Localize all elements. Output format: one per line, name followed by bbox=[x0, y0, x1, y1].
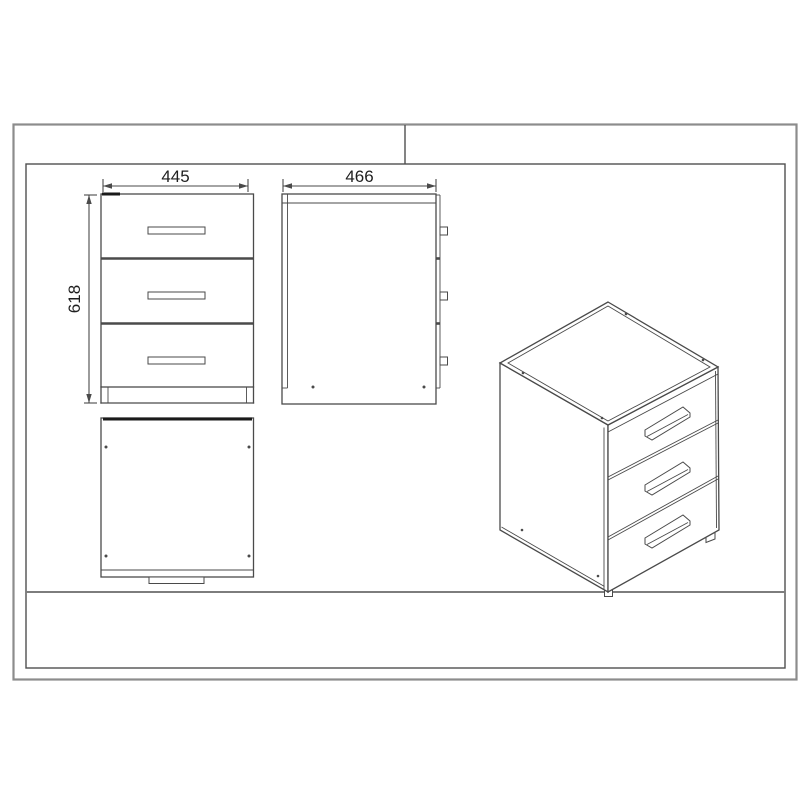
side-panel bbox=[282, 194, 436, 404]
side-handle-2 bbox=[440, 292, 448, 300]
dimension-depth-label: 466 bbox=[345, 167, 373, 186]
arrow-left bbox=[283, 183, 292, 188]
screw-dot bbox=[522, 372, 525, 375]
bottom-panel bbox=[101, 418, 254, 577]
dimension-height-label: 618 bbox=[65, 285, 84, 313]
screw-dot bbox=[521, 529, 524, 532]
arrow-right bbox=[239, 183, 248, 188]
screw-dot bbox=[625, 313, 628, 316]
screw-dot bbox=[423, 386, 426, 389]
dimension-depth: 466 bbox=[283, 167, 436, 192]
dimension-width-label: 445 bbox=[161, 167, 189, 186]
screw-dot bbox=[601, 417, 604, 420]
drawing-sheet: 445 618 bbox=[0, 0, 800, 800]
side-handle-1 bbox=[440, 227, 448, 235]
screw-dot bbox=[312, 386, 315, 389]
isometric-view bbox=[500, 302, 719, 597]
screw-dot bbox=[248, 555, 251, 558]
dimension-width: 445 bbox=[103, 167, 248, 192]
screw-dot bbox=[105, 555, 108, 558]
arrow-right bbox=[427, 183, 436, 188]
front-plinth bbox=[101, 387, 254, 403]
drawer-handle-1 bbox=[148, 227, 205, 234]
bottom-view bbox=[101, 418, 254, 584]
dimension-height: 618 bbox=[65, 195, 97, 403]
side-handle-3 bbox=[440, 357, 448, 365]
front-view: 445 618 bbox=[65, 167, 254, 403]
screw-dot bbox=[248, 446, 251, 449]
drawer-handle-2 bbox=[148, 292, 205, 299]
screw-dot bbox=[597, 575, 600, 578]
technical-drawing: 445 618 bbox=[0, 0, 800, 800]
arrow-left bbox=[103, 183, 112, 188]
arrow-top bbox=[86, 195, 91, 204]
side-drawer-fronts bbox=[436, 195, 448, 388]
arrow-bottom bbox=[86, 394, 91, 403]
drawer-handle-3 bbox=[148, 357, 205, 364]
screw-dot bbox=[105, 446, 108, 449]
bottom-handle bbox=[149, 577, 204, 584]
side-view: 466 bbox=[282, 167, 448, 404]
screw-dot bbox=[702, 359, 705, 362]
